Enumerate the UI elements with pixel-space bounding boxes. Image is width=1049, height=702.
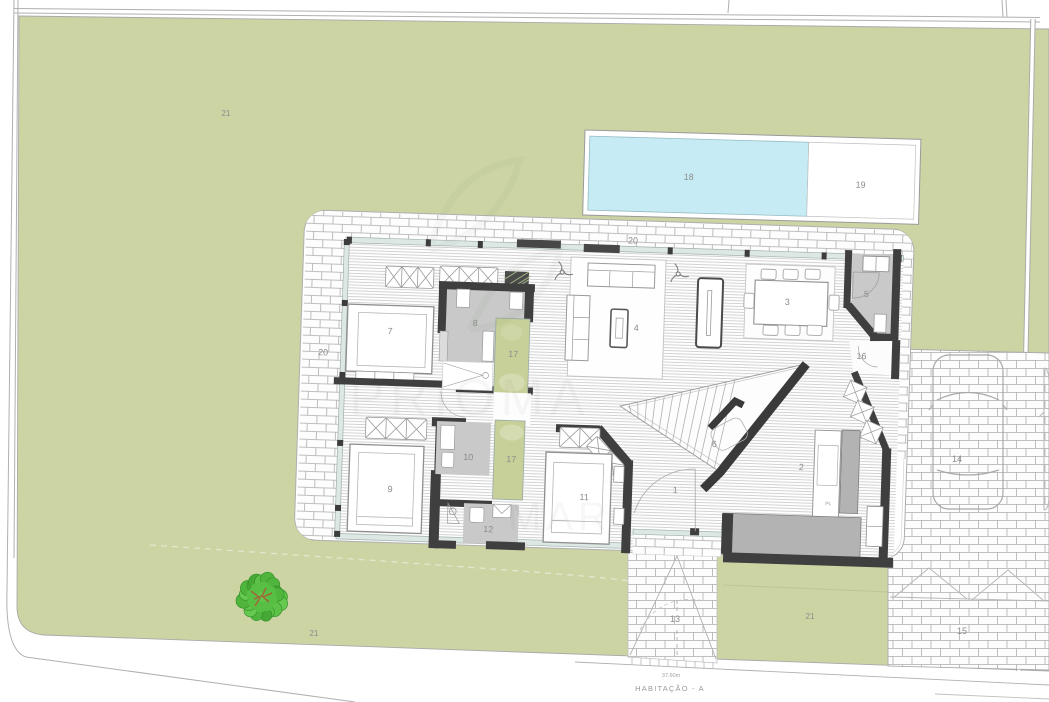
svg-text:MAR: MAR	[508, 495, 612, 539]
svg-text:2: 2	[799, 462, 804, 472]
svg-text:9: 9	[387, 484, 392, 494]
svg-text:19: 19	[855, 180, 865, 190]
svg-text:20: 20	[318, 347, 328, 357]
svg-text:21: 21	[806, 612, 815, 621]
svg-text:PRIOMA: PRIOMA	[349, 369, 590, 427]
svg-text:3: 3	[785, 297, 790, 307]
svg-text:18: 18	[684, 172, 694, 182]
svg-text:10: 10	[463, 452, 473, 462]
svg-text:5: 5	[864, 289, 869, 299]
svg-text:20: 20	[628, 235, 638, 245]
svg-text:13: 13	[670, 614, 680, 624]
svg-text:7: 7	[387, 326, 392, 336]
svg-text:21: 21	[222, 109, 231, 118]
svg-text:14: 14	[952, 454, 962, 464]
svg-text:1: 1	[673, 485, 678, 495]
svg-text:21: 21	[310, 629, 319, 638]
svg-text:15: 15	[957, 626, 967, 636]
svg-text:PL: PL	[825, 501, 832, 507]
svg-text:17: 17	[508, 349, 518, 359]
svg-text:HABITAÇÃO - A: HABITAÇÃO - A	[635, 684, 705, 693]
svg-text:4: 4	[634, 323, 639, 333]
svg-text:37.60m: 37.60m	[662, 673, 681, 679]
svg-text:12: 12	[483, 524, 493, 534]
svg-text:6: 6	[712, 439, 717, 449]
svg-text:16: 16	[856, 351, 866, 361]
svg-text:17: 17	[506, 454, 516, 464]
